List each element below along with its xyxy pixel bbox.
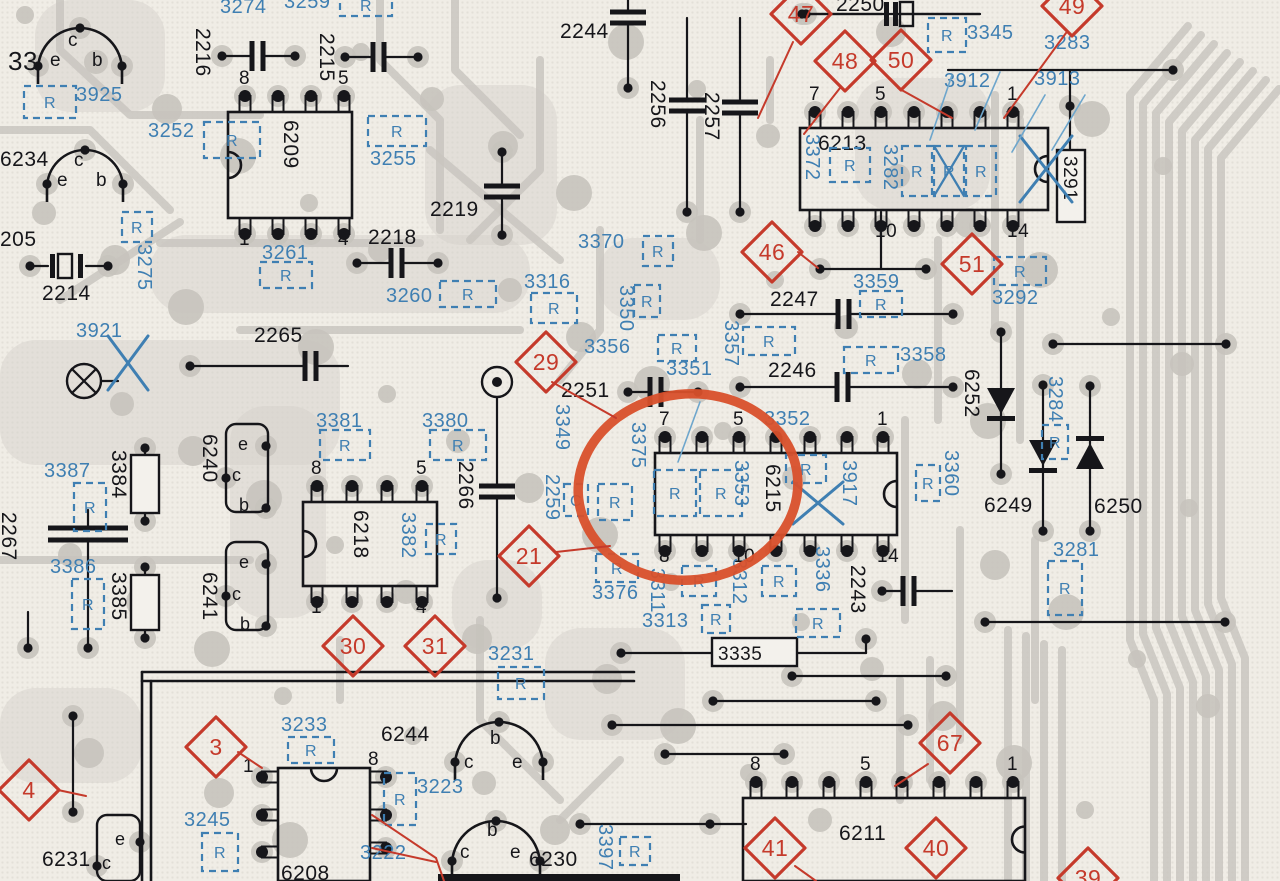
svg-text:2216: 2216 [191,28,214,77]
blue-ref-3375: 3375 [627,422,649,469]
r-placeholder-box: R [654,470,696,516]
ref-label-205: 205 [0,228,37,251]
blue-ref-3275: 3275 [133,244,155,291]
capacitor-2216 [217,41,299,71]
svg-text:3231: 3231 [488,643,535,665]
svg-text:205: 205 [0,228,37,251]
svg-text:3359: 3359 [853,271,900,293]
svg-text:3380: 3380 [422,410,469,432]
svg-text:3384: 3384 [107,450,130,499]
wire [660,749,788,758]
svg-text:2246: 2246 [768,359,817,382]
ref-label-6240: 6240 [198,434,221,483]
svg-text:5: 5 [338,68,349,89]
r-placeholder-box: R [122,212,152,242]
svg-text:3370: 3370 [578,231,625,253]
ref-label-2267: 2267 [0,512,20,561]
svg-text:41: 41 [762,835,789,861]
svg-text:R: R [669,486,681,503]
ref-label-6241: 6241 [198,572,221,621]
svg-text:R: R [1014,264,1026,281]
blue-ref-3233: 3233 [281,714,328,736]
svg-text:c: c [460,842,470,863]
svg-text:6208: 6208 [281,862,330,881]
ref-label-6234: 6234 [0,148,49,171]
svg-text:R: R [773,574,785,591]
svg-text:R: R [435,532,447,549]
blue-ref-3380: 3380 [422,410,469,432]
svg-text:67: 67 [937,730,964,756]
capacitor-2247 [735,299,957,329]
svg-text:3259: 3259 [284,0,331,13]
blue-ref-3313: 3313 [642,610,689,632]
svg-text:R: R [1049,435,1061,452]
svg-text:51: 51 [959,251,986,277]
r-placeholder-box: R [928,18,966,52]
ref-label-2243: 2243 [846,565,869,614]
svg-text:14: 14 [877,546,899,567]
svg-text:3292: 3292 [992,287,1039,309]
svg-text:2259: 2259 [541,474,563,521]
callout-diamond-39: 39 [1058,848,1118,881]
svg-text:c: c [102,853,112,873]
ref-label-6244: 6244 [381,723,430,746]
svg-text:R: R [710,612,722,629]
blue-ref-3382: 3382 [397,512,419,559]
svg-text:3274: 3274 [220,0,267,18]
blue-ref-3921: 3921 [76,320,123,342]
callout-diamond-41: 41 [745,818,805,878]
capacitor-2257 [722,18,758,217]
svg-text:4: 4 [416,597,427,618]
svg-text:R: R [641,294,653,311]
svg-text:3913: 3913 [1034,68,1081,90]
ref-label-6249: 6249 [984,494,1033,517]
svg-text:8: 8 [311,458,322,479]
blue-ref-3397: 3397 [594,824,616,871]
svg-text:3921: 3921 [76,320,123,342]
svg-text:7: 7 [659,409,670,430]
svg-text:4: 4 [22,777,35,803]
red-leader-line [758,42,793,118]
blue-ref-3360: 3360 [940,450,962,497]
svg-text:b: b [239,495,250,515]
svg-text:6218: 6218 [349,510,372,559]
blue-ref-3260: 3260 [386,285,433,307]
svg-text:3260: 3260 [386,285,433,307]
svg-text:3397: 3397 [594,824,616,871]
svg-text:8: 8 [750,754,761,775]
callout-diamond-48: 48 [815,31,875,91]
svg-text:3357: 3357 [720,320,742,367]
svg-text:3385: 3385 [107,572,130,621]
resistor-3384 [131,455,159,513]
svg-text:3282: 3282 [879,144,901,191]
svg-text:2219: 2219 [430,198,479,221]
blue-ref-3387: 3387 [44,460,91,482]
blue-ref-3292: 3292 [992,287,1039,309]
svg-text:21: 21 [516,543,543,569]
svg-text:R: R [671,341,683,358]
resistor-3335: 3335 [712,638,797,666]
callout-diamond-40: 40 [906,818,966,878]
diode-6252 [987,327,1015,478]
blue-ref-3376: 3376 [592,582,639,604]
svg-text:6211: 6211 [839,822,886,845]
svg-text:3245: 3245 [184,809,231,831]
resistor-3385 [131,575,159,630]
svg-text:R: R [844,158,856,175]
callout-diamond-3: 3 [186,717,246,777]
svg-text:R: R [515,676,527,693]
svg-text:c: c [232,465,242,485]
ref-label-6231: 6231 [42,848,91,871]
svg-text:3255: 3255 [370,148,417,170]
ref-label-2247: 2247 [770,288,819,311]
r-placeholder-box: R [531,293,577,323]
svg-text:R: R [82,597,94,614]
svg-text:3281: 3281 [1053,539,1100,561]
svg-text:3358: 3358 [900,344,947,366]
svg-text:40: 40 [923,835,950,861]
svg-text:49: 49 [1059,0,1086,19]
svg-text:1: 1 [311,597,322,618]
ref-label-6252: 6252 [960,369,983,418]
svg-text:b: b [240,614,251,634]
r-placeholder-box: R [598,484,632,520]
bottom-edge-bar [438,874,680,881]
svg-text:R: R [462,287,474,304]
svg-text:5: 5 [416,458,427,479]
svg-text:3291: 3291 [1059,156,1080,200]
svg-text:e: e [239,552,250,572]
ref-label-2250: 2250 [836,0,885,16]
ref-label-2215: 2215 [315,33,338,82]
svg-text:6240: 6240 [198,434,221,483]
blue-ref-3349: 3349 [551,404,573,451]
svg-text:R: R [715,486,727,503]
svg-text:c: c [464,752,474,773]
r-placeholder-box: R [743,327,795,355]
blue-ref-3261: 3261 [262,242,309,264]
svg-text:2250: 2250 [836,0,885,16]
svg-text:3351: 3351 [666,358,713,380]
svg-text:3353: 3353 [730,460,752,507]
r-placeholder-box: R [202,833,238,871]
svg-text:3356: 3356 [584,336,631,358]
blue-ref-3913: 3913 [1034,68,1081,90]
svg-text:3350: 3350 [615,285,637,332]
svg-text:6249: 6249 [984,494,1033,517]
svg-text:5: 5 [860,754,871,775]
svg-text:2267: 2267 [0,512,20,561]
svg-text:3223: 3223 [417,776,464,798]
ref-label-2266: 2266 [454,461,477,510]
svg-text:3345: 3345 [967,22,1014,44]
svg-text:R: R [452,438,464,455]
svg-text:e: e [238,434,249,454]
ref-label-2265: 2265 [254,324,303,347]
blue-ref-3245: 3245 [184,809,231,831]
svg-text:c: c [74,150,84,171]
blue-ref-3282: 3282 [879,144,901,191]
ref-label-2246: 2246 [768,359,817,382]
svg-text:3372: 3372 [801,134,823,181]
svg-text:3335: 3335 [718,644,762,665]
svg-text:R: R [922,476,934,493]
svg-text:R: R [305,743,317,760]
svg-text:6209: 6209 [279,120,302,169]
svg-text:R: R [214,845,226,862]
svg-text:3313: 3313 [642,610,689,632]
svg-text:R: R [975,164,987,181]
svg-text:R: R [548,301,560,318]
svg-text:3336: 3336 [811,546,833,593]
svg-text:3912: 3912 [944,70,991,92]
svg-text:7: 7 [809,84,820,105]
r-placeholder-box: R [844,347,898,373]
blue-ref-3386: 3386 [50,556,97,578]
svg-text:39: 39 [1075,865,1102,881]
svg-text:6250: 6250 [1094,495,1143,518]
svg-text:31: 31 [422,633,449,659]
svg-text:8: 8 [368,749,379,770]
svg-text:3376: 3376 [592,582,639,604]
svg-text:R: R [875,297,887,314]
svg-text:R: R [339,438,351,455]
svg-text:2215: 2215 [315,33,338,82]
svg-text:3360: 3360 [940,450,962,497]
svg-text:6244: 6244 [381,723,430,746]
ref-label-2257: 2257 [700,92,723,141]
svg-text:e: e [115,829,126,849]
svg-text:30: 30 [340,633,367,659]
svg-text:6215: 6215 [761,464,784,513]
svg-text:R: R [44,95,56,112]
capacitor-2215 [340,42,422,72]
svg-text:e: e [510,842,521,863]
svg-text:2214: 2214 [42,282,91,305]
svg-text:14: 14 [1007,221,1029,242]
ref-label-6250: 6250 [1094,495,1143,518]
svg-text:50: 50 [888,47,915,73]
svg-text:b: b [490,728,501,749]
blue-ref-3345: 3345 [967,22,1014,44]
svg-text:2265: 2265 [254,324,303,347]
ref-label-2244: 2244 [560,20,609,43]
svg-text:6252: 6252 [960,369,983,418]
blue-ref-3255: 3255 [370,148,417,170]
blue-ref-3223: 3223 [417,776,464,798]
svg-text:R: R [629,844,641,861]
svg-text:2257: 2257 [700,92,723,141]
r-placeholder-box: R [426,524,456,554]
svg-text:3233: 3233 [281,714,328,736]
svg-text:3387: 3387 [44,460,91,482]
callout-diamond-30: 30 [323,616,383,676]
svg-text:5: 5 [875,84,886,105]
r-placeholder-box: R [916,465,940,501]
blue-ref-3274: 3274 [220,0,267,18]
svg-text:29: 29 [533,349,560,375]
blue-ref-3370: 3370 [578,231,625,253]
ref-label-3384: 3384 [107,450,130,499]
ic-6211: 8516211 [743,754,1025,881]
svg-text:R: R [652,244,664,261]
blue-ref-3252: 3252 [148,120,195,142]
r-placeholder-box: R [288,737,334,763]
svg-text:1: 1 [1007,754,1018,775]
r-placeholder-box: R [340,0,392,16]
wire [23,612,32,653]
r-placeholder-box: R [702,605,730,633]
ref-label-6230: 6230 [529,848,578,871]
svg-text:3: 3 [209,734,222,760]
r-placeholder-box: R [762,566,796,596]
blue-ref-3372: 3372 [801,134,823,181]
blue-ref-3912: 3912 [944,70,991,92]
svg-text:e: e [57,170,68,191]
blue-ref-3284: 3284 [1044,376,1066,423]
capacitor-2243 [877,576,952,606]
svg-text:c: c [232,584,242,604]
svg-text:R: R [812,616,824,633]
svg-text:1: 1 [877,409,888,430]
ref-label-33: 33 [8,46,38,76]
svg-text:3275: 3275 [133,244,155,291]
svg-text:3382: 3382 [397,512,419,559]
blue-ref-3356: 3356 [584,336,631,358]
ref-label-3385: 3385 [107,572,130,621]
svg-text:2247: 2247 [770,288,819,311]
svg-text:5: 5 [733,409,744,430]
svg-text:1: 1 [239,229,250,250]
svg-text:3925: 3925 [76,84,123,106]
svg-text:2256: 2256 [646,80,669,129]
svg-text:47: 47 [788,1,815,27]
svg-text:8: 8 [239,68,250,89]
svg-text:R: R [763,334,775,351]
svg-text:b: b [92,50,103,71]
svg-text:e: e [512,752,523,773]
svg-text:4: 4 [338,229,349,250]
schematic-scan: 3291333585146209751101462137518101462158… [0,0,1280,881]
svg-text:3349: 3349 [551,404,573,451]
blue-ref-3357: 3357 [720,320,742,367]
ref-label-2256: 2256 [646,80,669,129]
svg-text:R: R [394,792,406,809]
svg-text:10: 10 [875,221,897,242]
svg-text:R: R [280,268,292,285]
svg-text:3316: 3316 [524,271,571,293]
svg-text:3375: 3375 [627,422,649,469]
svg-text:2243: 2243 [846,565,869,614]
callout-diamond-47: 47 [771,0,831,44]
svg-text:R: R [865,353,877,370]
svg-text:c: c [68,30,78,51]
svg-text:b: b [96,170,107,191]
svg-text:R: R [391,124,403,141]
blue-ref-2259: 2259 [541,474,563,521]
wire [708,696,880,705]
svg-text:R: R [84,500,96,517]
callout-diamond-49: 49 [1042,0,1102,36]
blue-ref-3353: 3353 [730,460,752,507]
svg-text:8: 8 [659,546,670,567]
svg-text:R: R [226,133,238,150]
schematic-svg: 3291333585146209751101462137518101462158… [0,0,1280,881]
svg-text:2244: 2244 [560,20,609,43]
svg-text:6230: 6230 [529,848,578,871]
blue-ref-3381: 3381 [316,410,363,432]
r-placeholder-box: R [368,116,426,146]
svg-text:3386: 3386 [50,556,97,578]
ref-label-2218: 2218 [368,226,417,249]
svg-text:6213: 6213 [818,132,867,155]
svg-text:3283: 3283 [1044,32,1091,54]
ref-label-2216: 2216 [191,28,214,77]
svg-text:6234: 6234 [0,148,49,171]
r-placeholder-box: R [620,837,650,865]
blue-ref-3231: 3231 [488,643,535,665]
svg-text:e: e [50,50,61,71]
test-point [482,367,512,397]
svg-text:6241: 6241 [198,572,221,621]
red-leader-line [795,866,816,881]
svg-text:R: R [131,220,143,237]
blue-ref-3351: 3351 [666,358,713,380]
svg-text:2218: 2218 [368,226,417,249]
svg-text:3261: 3261 [262,242,309,264]
ref-label-2219: 2219 [430,198,479,221]
svg-text:3252: 3252 [148,120,195,142]
svg-text:3284: 3284 [1044,376,1066,423]
svg-text:R: R [360,0,372,15]
svg-text:b: b [487,820,498,841]
blue-ref-3350: 3350 [615,285,637,332]
svg-text:R: R [911,164,923,181]
svg-text:2266: 2266 [454,461,477,510]
r-placeholder-box: R [74,483,106,531]
wire [980,617,1229,626]
blue-ref-3336: 3336 [811,546,833,593]
svg-text:48: 48 [832,48,859,74]
blue-ref-3358: 3358 [900,344,947,366]
blue-ref-3316: 3316 [524,271,571,293]
svg-text:3381: 3381 [316,410,363,432]
ref-label-2214: 2214 [42,282,91,305]
blue-ref-3281: 3281 [1053,539,1100,561]
blue-ref-3359: 3359 [853,271,900,293]
blue-ref-3283: 3283 [1044,32,1091,54]
svg-text:R: R [941,28,953,45]
svg-text:46: 46 [759,239,786,265]
svg-text:33: 33 [8,46,38,76]
svg-text:R: R [1059,581,1071,598]
blue-ref-3925: 3925 [76,84,123,106]
svg-text:R: R [609,495,621,512]
blue-ref-3259: 3259 [284,0,331,13]
svg-text:6231: 6231 [42,848,91,871]
